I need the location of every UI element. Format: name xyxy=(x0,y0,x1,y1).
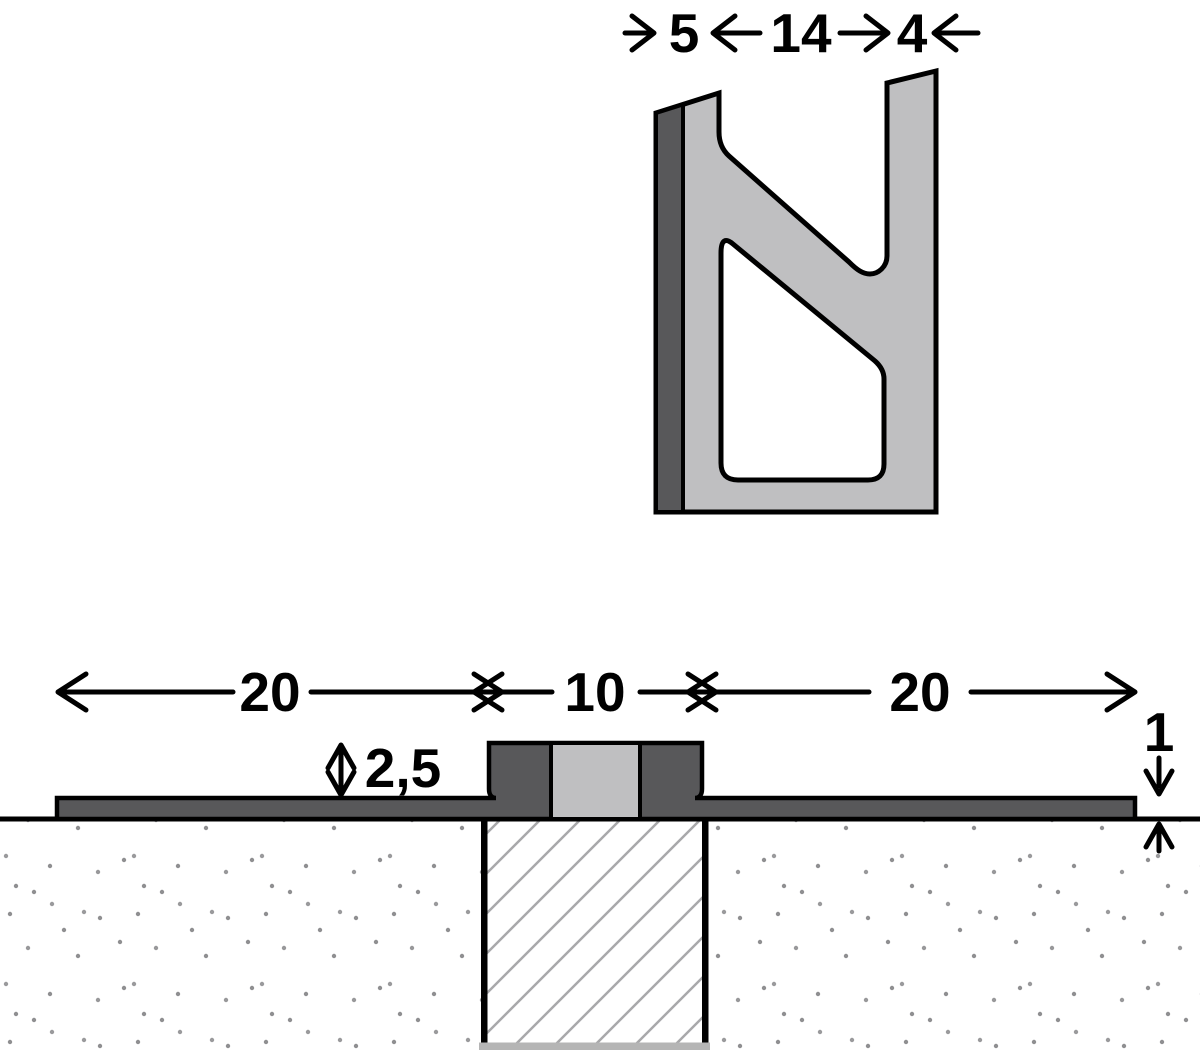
joint-filler-hatch xyxy=(484,822,705,1043)
joint-profile-insert xyxy=(551,743,640,819)
dim-label-edge: 1 xyxy=(1144,701,1175,763)
dim-label-profile-left: 5 xyxy=(669,2,700,64)
dim-label-profile-middle: 14 xyxy=(770,2,832,64)
dim-label-profile-right: 4 xyxy=(897,2,928,64)
dim-label-left-flange: 20 xyxy=(239,661,300,723)
dim-label-right-flange: 20 xyxy=(889,661,950,723)
joint-filler-bottom-edge xyxy=(479,1043,710,1050)
profile-anchor-strip xyxy=(656,105,683,513)
dim-label-center: 10 xyxy=(564,661,625,723)
joint-filler-border-right xyxy=(702,819,709,1043)
drawing-canvas: 5 14 4 20 10 xyxy=(0,0,1200,1050)
joint-filler-border-left xyxy=(481,819,488,1043)
dim-label-upstand: 2,5 xyxy=(365,737,441,799)
technical-drawing: 5 14 4 20 10 xyxy=(0,0,1200,1050)
joint-filler xyxy=(479,819,710,1050)
